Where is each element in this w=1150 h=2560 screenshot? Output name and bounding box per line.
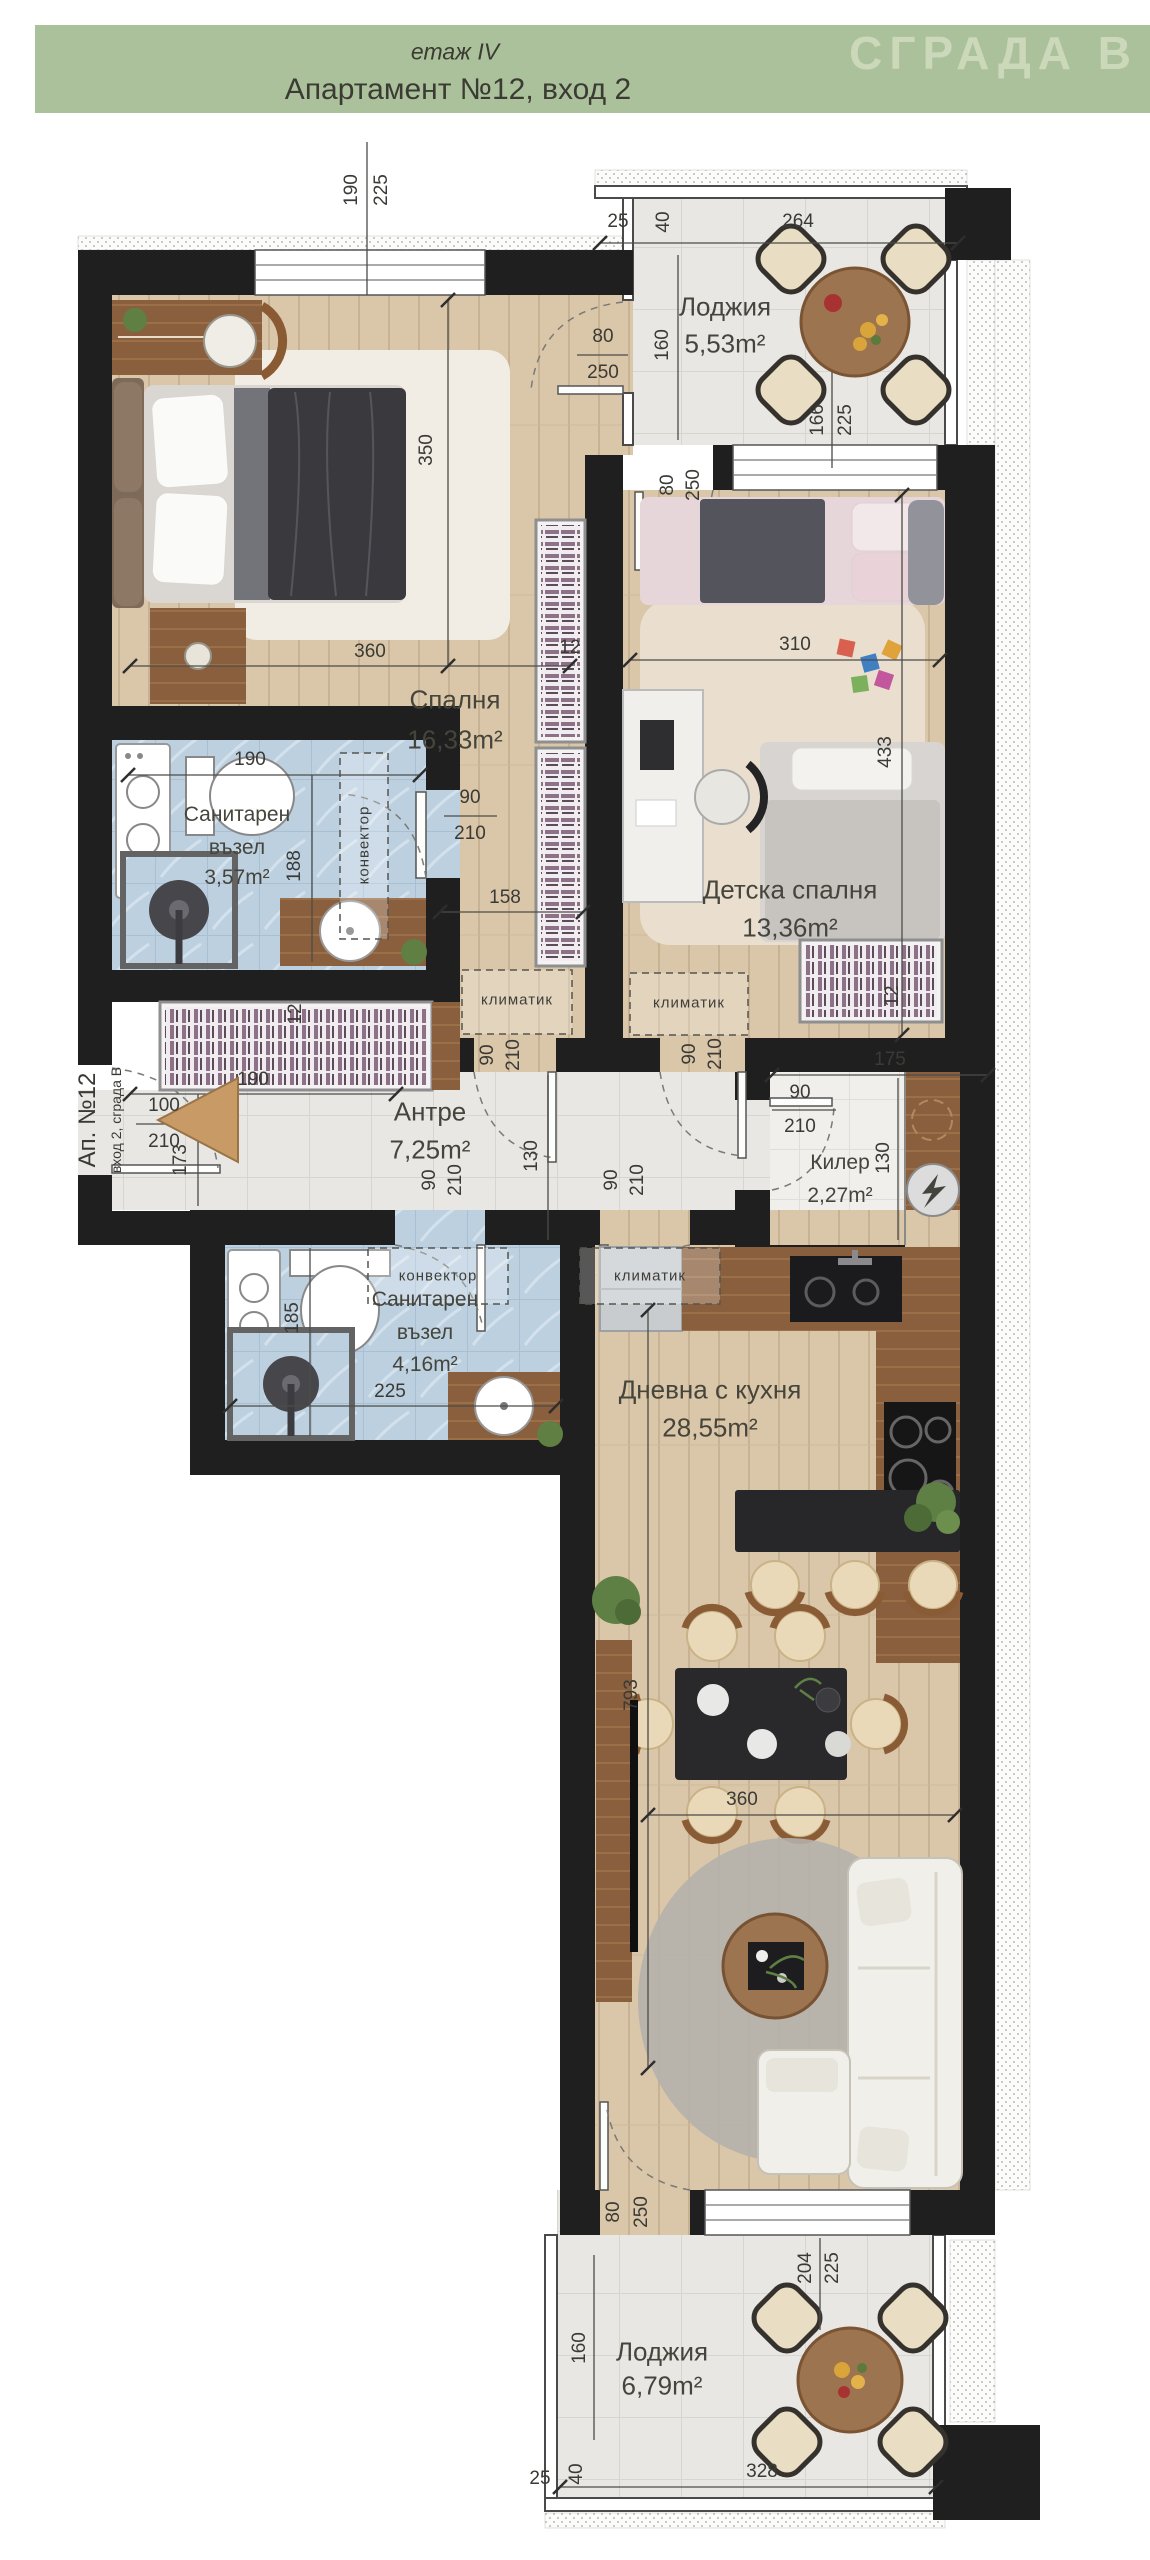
room-label-living: Дневна с кухня	[619, 1375, 802, 1406]
dim-label: 12	[882, 985, 904, 1006]
dim-label: 90	[679, 1043, 701, 1064]
round-table	[801, 268, 909, 376]
dim-label: 210	[503, 1039, 525, 1071]
dim-label: 175	[874, 1049, 906, 1071]
room-label-bathroom2: Санитарен	[372, 1288, 478, 1312]
convector-annotation: конвектор	[356, 806, 373, 885]
dim-label: 190	[341, 174, 363, 206]
dim-label: 250	[587, 362, 619, 384]
dim-label: 190	[237, 1069, 269, 1091]
room-label2-bathroom2: възел	[397, 1321, 453, 1345]
dim-label: 250	[631, 2196, 653, 2228]
bedroom-window	[255, 250, 485, 295]
dim-label: 210	[627, 1164, 649, 1196]
room-area-bathroom1: 3,57m²	[204, 866, 269, 890]
plant-icon	[401, 939, 427, 965]
dim-label: 310	[779, 634, 811, 656]
room-label-pantry: Килер	[810, 1151, 870, 1175]
floorplan-page: етаж IV Апартамент №12, вход 2 СГРАДА В	[0, 0, 1150, 2560]
dim-label: 90	[459, 787, 480, 809]
plant-icon	[123, 308, 147, 332]
dim-label: 204	[795, 2252, 817, 2284]
dim-label: 190	[234, 749, 266, 771]
room-label-loggia-bottom: Лоджия	[616, 2337, 708, 2368]
room-area-bedroom: 16,33m²	[407, 725, 502, 756]
dim-label: 160	[652, 329, 674, 361]
dim-label: 25	[529, 2468, 550, 2490]
dim-label: 40	[653, 211, 675, 232]
room-area-pantry: 2,27m²	[807, 1184, 872, 1208]
dim-label: 12	[285, 1003, 307, 1024]
room-area-kids: 13,36m²	[742, 913, 837, 944]
room-label-hallway: Антре	[394, 1097, 467, 1128]
living-window	[705, 2190, 910, 2235]
wardrobe	[536, 520, 585, 966]
dim-label: 80	[592, 326, 613, 348]
kids-window	[733, 445, 937, 490]
dim-label: 433	[875, 736, 897, 768]
dim-label: 90	[789, 1082, 810, 1104]
dim-label: 80	[657, 474, 679, 495]
room-area-bathroom2: 4,16m²	[392, 1353, 457, 1377]
room-area-living: 28,55m²	[662, 1413, 757, 1444]
dim-label: 100	[148, 1095, 180, 1117]
dim-label: 225	[371, 174, 393, 206]
dim-label: 225	[374, 1381, 406, 1403]
dim-label: 12	[559, 637, 580, 659]
dim-label: 173	[170, 1144, 192, 1176]
dim-label: 160	[569, 2332, 591, 2364]
side-apartment-label: Ап. №12	[74, 1073, 102, 1168]
room-label-kids: Детска спалня	[703, 875, 878, 906]
dim-label: 225	[835, 404, 857, 436]
dining-table	[675, 1668, 847, 1780]
dim-label: 80	[603, 2201, 625, 2222]
room-label-bedroom: Спалня	[410, 685, 501, 716]
floorplan-drawing	[0, 0, 1150, 2560]
room-area-loggia-top: 5,53m²	[685, 329, 766, 360]
dim-label: 225	[822, 2252, 844, 2284]
room-area-hallway: 7,25m²	[390, 1135, 471, 1166]
dim-label: 158	[489, 887, 521, 909]
dim-label: 90	[477, 1044, 499, 1065]
dim-label: 130	[873, 1142, 895, 1174]
dim-label: 210	[705, 1038, 727, 1070]
room-label-loggia-top: Лоджия	[679, 292, 771, 323]
electrical-outlet-icon	[907, 1164, 959, 1216]
dim-label: 210	[454, 823, 486, 845]
dim-label: 130	[521, 1140, 543, 1172]
dim-label: 250	[683, 469, 705, 501]
kids-wardrobe	[800, 940, 942, 1022]
dim-label: 25	[607, 211, 628, 233]
ac-annotation: климатик	[653, 995, 725, 1012]
dim-label: 40	[566, 2463, 588, 2484]
ac-annotation: климатик	[614, 1268, 686, 1285]
dim-label: 90	[419, 1169, 441, 1190]
hall-wardrobe	[160, 1002, 460, 1090]
dim-label: 350	[416, 434, 438, 466]
dim-label: 166	[807, 404, 829, 436]
dim-label: 210	[784, 1116, 816, 1138]
dim-label: 328	[746, 2461, 778, 2483]
round-table	[798, 2328, 902, 2432]
dim-label: 264	[782, 211, 814, 233]
ac-annotation: климатик	[481, 992, 553, 1009]
dim-label: 90	[601, 1169, 623, 1190]
dim-label: 188	[284, 850, 306, 882]
dim-label: 360	[354, 641, 386, 663]
dim-label: 185	[282, 1302, 304, 1334]
room-label-bathroom1: Санитарен	[184, 803, 290, 827]
side-entrance-label: вход 2, сграда В	[108, 1067, 124, 1173]
dim-label: 360	[726, 1789, 758, 1811]
dim-label: 793	[621, 1679, 643, 1711]
room-label2-bathroom1: възел	[209, 836, 265, 860]
bar-stools	[748, 1561, 960, 1613]
dim-label: 210	[445, 1164, 467, 1196]
tv	[630, 1700, 638, 1952]
room-area-loggia-bottom: 6,79m²	[622, 2371, 703, 2402]
convector-annotation: конвектор	[399, 1268, 478, 1285]
plant-icon	[537, 1421, 563, 1447]
